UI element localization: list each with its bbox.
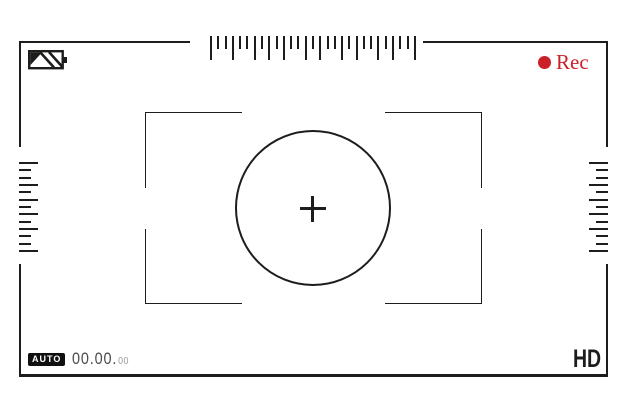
scale-tick bbox=[596, 191, 608, 193]
scale-tick bbox=[19, 162, 38, 164]
timecode-frames: 00 bbox=[118, 356, 129, 367]
scale-tick bbox=[19, 235, 31, 237]
scale-tick bbox=[377, 36, 379, 60]
scale-tick bbox=[356, 36, 358, 60]
scale-tick bbox=[19, 250, 38, 252]
scale-tick bbox=[268, 36, 270, 60]
scale-tick bbox=[363, 36, 365, 49]
scale-tick bbox=[232, 36, 234, 60]
scale-tick bbox=[283, 36, 285, 60]
scale-tick bbox=[319, 36, 321, 60]
scale-tick bbox=[596, 235, 608, 237]
bracket-bottom-right bbox=[385, 229, 482, 304]
scale-tick bbox=[297, 36, 299, 49]
auto-mode-badge[interactable]: AUTO bbox=[28, 353, 65, 366]
scale-tick bbox=[596, 177, 608, 179]
bracket-top-right bbox=[385, 112, 482, 188]
scale-tick bbox=[19, 221, 31, 223]
frame-bottom-segment bbox=[19, 374, 608, 377]
scale-tick bbox=[327, 36, 329, 49]
frame-top-left-segment bbox=[19, 41, 190, 43]
scale-tick bbox=[19, 191, 31, 193]
scale-tick bbox=[596, 243, 608, 245]
scale-tick bbox=[225, 36, 227, 49]
timecode-main: 00.00. bbox=[72, 350, 117, 367]
frame-right-lower-segment bbox=[606, 264, 608, 377]
timecode: 00.00. 00 bbox=[72, 350, 129, 367]
scale-tick bbox=[290, 36, 292, 49]
frame-left-upper-segment bbox=[19, 41, 21, 147]
bracket-bottom-left bbox=[145, 229, 242, 304]
scale-tick bbox=[341, 36, 343, 60]
scale-tick bbox=[19, 243, 31, 245]
scale-tick bbox=[589, 213, 608, 215]
scale-tick bbox=[589, 250, 608, 252]
exposure-ruler-top bbox=[210, 36, 416, 60]
scale-tick bbox=[589, 199, 608, 201]
scale-tick bbox=[239, 36, 241, 49]
scale-tick bbox=[334, 36, 336, 49]
scale-tick bbox=[19, 184, 38, 186]
crosshair-icon bbox=[311, 196, 314, 222]
scale-tick bbox=[19, 228, 38, 230]
scale-tick bbox=[589, 184, 608, 186]
scale-tick bbox=[19, 177, 31, 179]
scale-tick bbox=[254, 36, 256, 60]
record-dot-icon bbox=[538, 56, 551, 69]
scale-tick bbox=[370, 36, 372, 49]
frame-right-upper-segment bbox=[606, 41, 608, 147]
scale-tick bbox=[348, 36, 350, 49]
scale-tick bbox=[385, 36, 387, 49]
viewfinder-screen: Rec AUTO 00.00. 00 HD bbox=[0, 0, 626, 418]
scale-tick bbox=[276, 36, 278, 49]
scale-tick bbox=[210, 36, 212, 60]
frame-left-lower-segment bbox=[19, 264, 21, 377]
scale-tick bbox=[407, 36, 409, 49]
scale-tick bbox=[589, 228, 608, 230]
scale-tick bbox=[589, 162, 608, 164]
scale-tick bbox=[19, 199, 38, 201]
scale-tick bbox=[596, 206, 608, 208]
rec-label: Rec bbox=[556, 52, 589, 73]
scale-tick bbox=[596, 221, 608, 223]
scale-tick bbox=[392, 36, 394, 60]
scale-tick bbox=[596, 169, 608, 171]
scale-right bbox=[588, 162, 608, 252]
scale-tick bbox=[305, 36, 307, 60]
scale-tick bbox=[19, 169, 31, 171]
scale-tick bbox=[414, 36, 416, 60]
scale-tick bbox=[19, 206, 31, 208]
scale-tick bbox=[19, 213, 38, 215]
scale-tick bbox=[217, 36, 219, 49]
hd-quality-label: HD bbox=[573, 347, 601, 372]
battery-icon bbox=[28, 50, 68, 70]
frame-top-right-segment bbox=[423, 41, 608, 43]
bracket-top-left bbox=[145, 112, 242, 188]
scale-tick bbox=[399, 36, 401, 49]
scale-tick bbox=[312, 36, 314, 49]
rec-indicator[interactable]: Rec bbox=[538, 49, 589, 75]
scale-tick bbox=[246, 36, 248, 49]
scale-tick bbox=[261, 36, 263, 49]
scale-left bbox=[19, 162, 39, 252]
